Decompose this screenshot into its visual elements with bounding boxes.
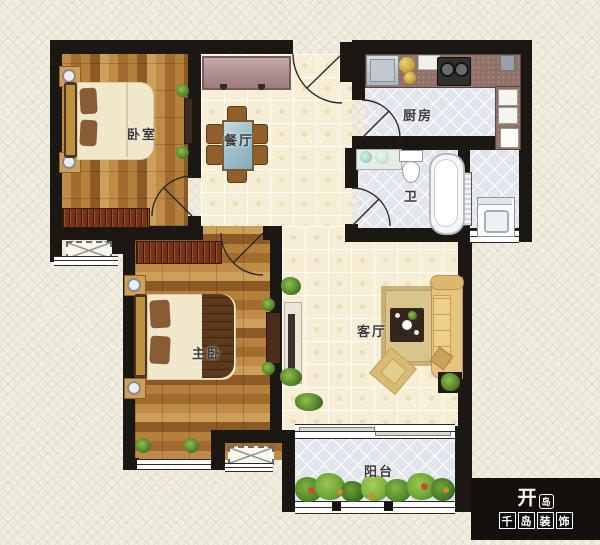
red-flower: [308, 487, 315, 494]
bathtub-basin: [434, 159, 458, 227]
room-label-living: 客厅: [357, 325, 387, 338]
stove-burner: [440, 62, 455, 77]
pillow: [79, 88, 97, 115]
kitchen-sink-basin: [370, 59, 395, 82]
washer-door: [484, 210, 509, 233]
wall-segment: [455, 426, 472, 512]
room-label-master-bedroom: 主卧: [192, 347, 222, 360]
potted-plant: [441, 373, 460, 391]
bedside-lamp: [127, 278, 141, 292]
cooking-pot: [404, 72, 416, 84]
brand-character: 装: [537, 512, 554, 529]
brand-character: 饰: [556, 512, 573, 529]
table-plant: [408, 311, 417, 320]
room-label-bath: 卫: [404, 190, 419, 203]
entry-cabinet: [202, 56, 291, 90]
bedside-lamp: [62, 69, 76, 83]
sofa-arm: [430, 275, 464, 290]
bed-blanket-gold: [66, 85, 75, 155]
brand-character: 岛: [518, 512, 535, 529]
bedside-lamp: [127, 381, 141, 395]
floor-plant: [136, 438, 151, 453]
wall-segment: [50, 40, 293, 54]
balcony-planting: [295, 455, 455, 505]
counter-cabinet: [498, 89, 518, 106]
dresser: [62, 208, 150, 228]
bed-blanket-gold: [136, 297, 145, 375]
potted-plant: [262, 362, 275, 375]
potted-plant: [280, 368, 302, 386]
pillow: [149, 299, 170, 328]
orange-flower: [369, 493, 375, 499]
wardrobe: [136, 241, 222, 264]
bed-throw: [202, 294, 234, 378]
window: [54, 256, 118, 266]
brand-character: 千: [499, 512, 516, 529]
sliding-door-leaf: [299, 427, 375, 432]
dining-chair: [206, 145, 223, 165]
brand-logo: 开 岛 千 岛 装 饰: [471, 478, 600, 540]
room-label-bedroom: 卧室: [127, 128, 157, 141]
floor-shrub: [295, 393, 323, 411]
floor-plant: [184, 438, 199, 453]
washer-panel: [478, 198, 512, 205]
floor-plan: 卧室 餐厅 厨房 卫 主卧 客厅 阳台 开 岛 千 岛 装 饰: [0, 0, 600, 545]
potted-plant: [176, 146, 189, 159]
wall-segment: [352, 42, 365, 100]
tea-set: [402, 320, 412, 330]
potted-plant: [281, 277, 301, 295]
duvet-fold-line: [126, 83, 128, 157]
window: [225, 463, 273, 472]
room-label-balcony: 阳台: [364, 465, 394, 478]
counter-cabinet: [498, 107, 518, 124]
bedroom-bench: [266, 312, 281, 364]
window: [137, 459, 211, 470]
cooking-pot: [399, 57, 415, 73]
logo-mark-character: 开: [517, 489, 536, 508]
brand-logo-mark: 开 岛: [517, 489, 553, 509]
sliding-door-leaf: [375, 431, 451, 436]
brand-name: 千 岛 装 饰: [499, 512, 573, 529]
pillow: [79, 120, 97, 147]
vanity-basin: [360, 151, 372, 163]
pillow: [149, 335, 170, 364]
potted-plant: [262, 298, 275, 311]
wall-segment: [282, 430, 295, 512]
orange-flower: [443, 487, 449, 493]
wall-mirror: [184, 98, 193, 144]
potted-plant: [176, 84, 189, 97]
balcony-sliding-door: [295, 424, 455, 439]
room-label-dining: 餐厅: [224, 134, 254, 147]
tv: [288, 314, 295, 370]
tea-cup: [414, 330, 419, 335]
vanity-basin: [375, 150, 389, 164]
room-label-kitchen: 厨房: [403, 109, 433, 122]
counter-appliance: [500, 128, 519, 148]
logo-mark-badge: 岛: [539, 494, 554, 509]
stove-burner: [454, 62, 469, 77]
red-flower: [421, 483, 428, 490]
wall-segment: [352, 40, 532, 54]
wall-segment: [340, 42, 352, 82]
counter-item: [500, 55, 515, 71]
dining-chair: [206, 124, 223, 144]
orange-flower: [337, 489, 343, 495]
tea-cup: [395, 313, 400, 318]
